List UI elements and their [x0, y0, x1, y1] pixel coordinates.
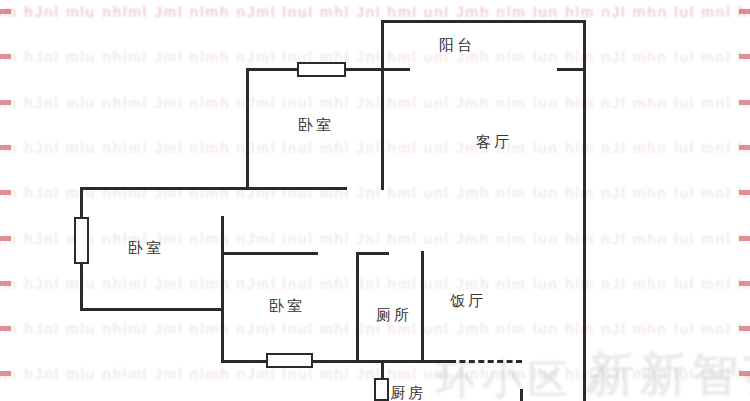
wall-kitchen-right: [520, 389, 523, 401]
watermark-edge-mark: [0, 190, 11, 195]
room-label-living-room: 客厅: [476, 133, 512, 152]
window-bedroom-top: [297, 62, 346, 77]
watermark-edge-mark: [0, 371, 11, 376]
room-label-kitchen: 厨房: [390, 384, 426, 401]
watermark-edge-mark: [739, 54, 750, 59]
wall-bedroom-top-left: [246, 68, 249, 190]
room-label-dining-room: 饭厅: [450, 292, 486, 311]
wall-balcony-top: [381, 20, 586, 23]
watermark-edge-mark: [739, 145, 750, 150]
wall-kitchen-left: [381, 360, 384, 379]
watermark-edge-mark: [739, 9, 750, 14]
watermark-row: lnm hJnl mlu nhlml Jml nlmh nJml lnul mh…: [0, 139, 750, 157]
wall-bedroom-left-bottom: [81, 308, 224, 311]
room-label-balcony: 阳台: [439, 36, 475, 55]
watermark-edge-mark: [0, 326, 11, 331]
wall-balcony-sill-right: [557, 68, 586, 71]
watermark-edge-mark: [0, 145, 11, 150]
window-bedroom-left: [74, 217, 89, 264]
watermark-edge-mark: [0, 54, 11, 59]
floorplan: lnm hJnl mlu nhlml Jml nlmh nJml lnul mh…: [0, 0, 750, 401]
wall-toilet-right: [421, 251, 424, 363]
watermark-row: lnm hJnl mlu nhlml Jml nlmh nJml lnul mh…: [0, 275, 750, 293]
watermark-row: lnm hJnl mlu nhlml Jml nlmh nJml lnul mh…: [0, 48, 750, 66]
watermark-edge-mark: [739, 190, 750, 195]
room-label-bedroom-left: 卧室: [128, 239, 164, 258]
watermark-edge-mark: [739, 236, 750, 241]
room-label-bedroom-top: 卧室: [298, 116, 334, 135]
watermark-row: lnm hJnl mlu nhlml Jml nlmh nJml lnul mh…: [0, 3, 750, 21]
wall-toilet-left: [356, 252, 359, 363]
watermark-bottom-right: 新新智荟: [588, 344, 750, 401]
watermark-edge-mark: [739, 100, 750, 105]
wall-bedroom-center-top: [221, 252, 318, 255]
window-kitchen: [374, 378, 389, 401]
window-bedroom-center: [266, 353, 313, 368]
watermark-row: lnm hJnl mlu nhlml Jml nlmh nJml lnul mh…: [0, 230, 750, 248]
wall-bottom-sliding: [450, 360, 522, 363]
watermark-row: lnm hJnl mlu nhlml Jml nlmh nJml lnul mh…: [0, 320, 750, 338]
watermark-edge-mark: [739, 281, 750, 286]
watermark-edge-mark: [0, 100, 11, 105]
wall-bedroom-top-bottom: [81, 187, 347, 190]
watermark-edge-mark: [739, 326, 750, 331]
watermark-row: lnm hJnl mlu nhlml Jml nlmh nJml lnul mh…: [0, 94, 750, 112]
watermark-edge-mark: [0, 236, 11, 241]
watermark-edge-mark: [0, 9, 11, 14]
room-label-toilet: 厕所: [376, 306, 412, 325]
wall-bedroom-center-left: [221, 216, 224, 363]
room-label-bedroom-center: 卧室: [269, 297, 305, 316]
watermark-edge-mark: [0, 281, 11, 286]
wall-bottom-main: [221, 360, 450, 363]
wall-living-left: [381, 20, 384, 190]
wall-toilet-top: [356, 252, 389, 255]
wall-outer-right: [583, 20, 586, 401]
